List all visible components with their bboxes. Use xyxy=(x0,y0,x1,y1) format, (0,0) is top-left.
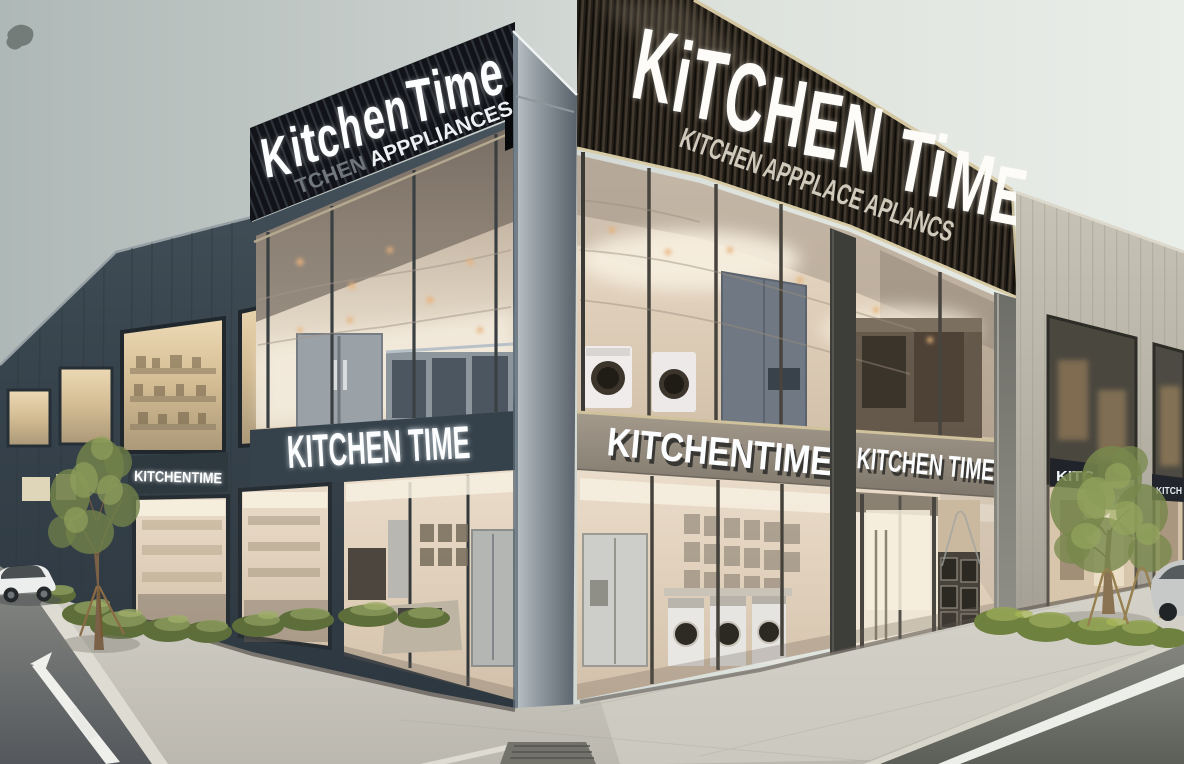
svg-text:KITCHEN TIME: KITCHEN TIME xyxy=(286,416,472,478)
svg-text:KITCHENTIME: KITCHENTIME xyxy=(134,468,222,487)
